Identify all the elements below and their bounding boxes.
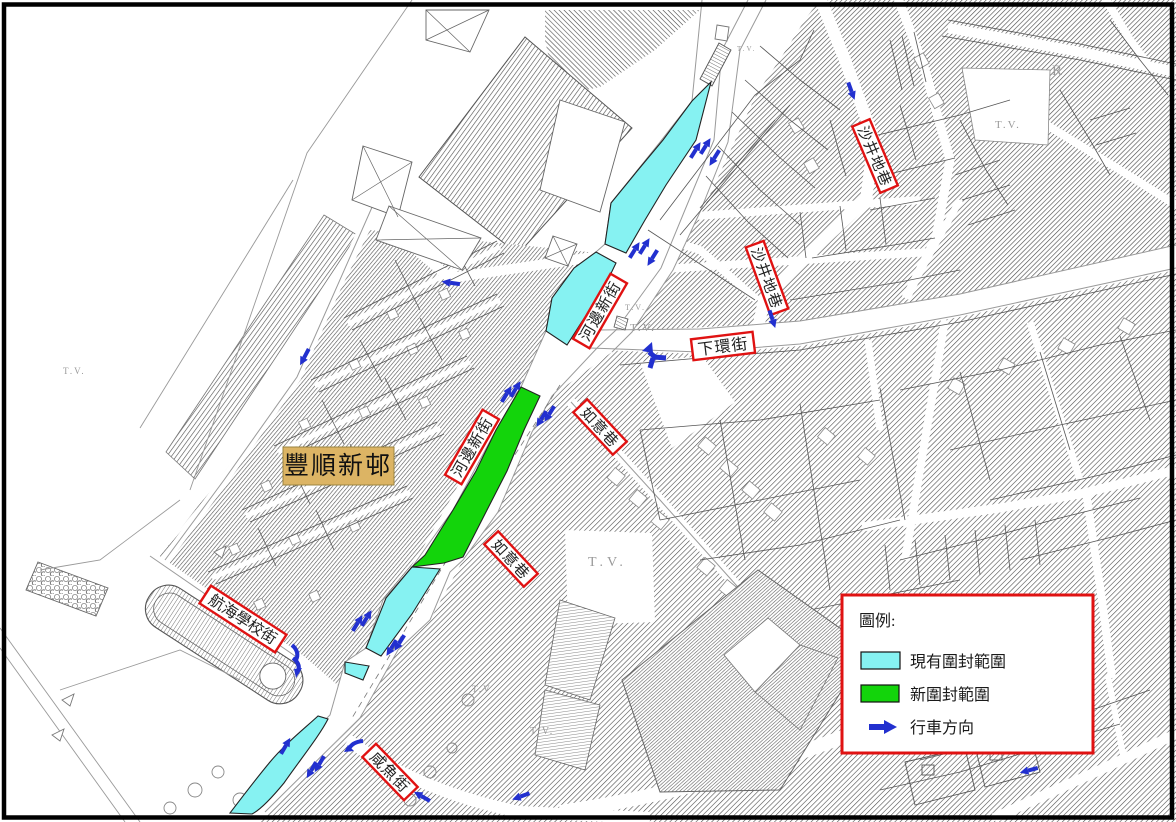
svg-text:T.V.: T.V. bbox=[472, 684, 495, 694]
svg-text:T.V.: T.V. bbox=[630, 322, 656, 334]
svg-text:豐順新邨: 豐順新邨 bbox=[284, 452, 392, 480]
svg-text:T.V.: T.V. bbox=[530, 726, 554, 737]
svg-text:T.V.: T.V. bbox=[995, 119, 1021, 131]
svg-text:T.V.: T.V. bbox=[63, 366, 86, 376]
svg-text:R: R bbox=[1052, 63, 1064, 79]
svg-text:現有圍封範圍: 現有圍封範圍 bbox=[910, 653, 1006, 671]
svg-text:圖例:: 圖例: bbox=[859, 612, 895, 630]
svg-text:T.V.: T.V. bbox=[588, 555, 627, 570]
svg-text:行車方向: 行車方向 bbox=[910, 719, 974, 737]
svg-text:新圍封範圍: 新圍封範圍 bbox=[910, 686, 990, 704]
svg-text:T.V.: T.V. bbox=[625, 303, 646, 312]
svg-text:T.V.: T.V. bbox=[737, 45, 756, 53]
